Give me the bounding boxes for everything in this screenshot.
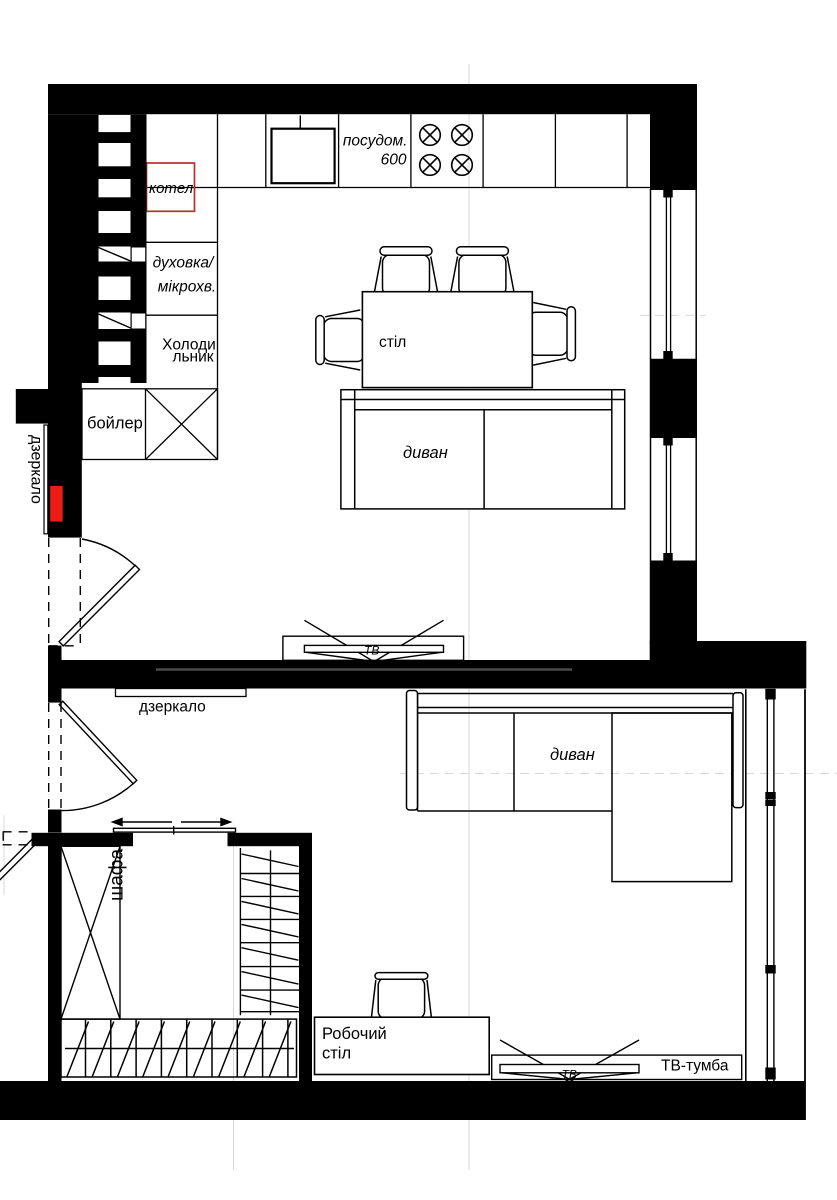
- svg-text:диван: диван: [403, 444, 448, 462]
- svg-text:духовка/: духовка/: [153, 255, 215, 272]
- svg-text:стіл: стіл: [322, 1045, 351, 1063]
- svg-text:диван: диван: [550, 746, 595, 764]
- svg-text:ТВ: ТВ: [562, 1068, 577, 1082]
- svg-text:льник: льник: [172, 349, 213, 366]
- svg-text:шафа: шафа: [107, 849, 128, 901]
- svg-text:мікрохв.: мікрохв.: [158, 279, 216, 296]
- svg-text:стіл: стіл: [379, 334, 406, 351]
- svg-text:бойлер: бойлер: [87, 415, 143, 433]
- svg-text:посудом.: посудом.: [343, 133, 408, 150]
- svg-text:дзеркало: дзеркало: [28, 435, 45, 504]
- svg-text:ТВ: ТВ: [364, 644, 379, 658]
- svg-text:600: 600: [381, 152, 407, 169]
- svg-text:ТВ-тумба: ТВ-тумба: [661, 1058, 729, 1075]
- svg-text:Робочий: Робочий: [322, 1025, 387, 1043]
- svg-text:котел: котел: [149, 180, 194, 197]
- svg-text:дзеркало: дзеркало: [139, 699, 206, 716]
